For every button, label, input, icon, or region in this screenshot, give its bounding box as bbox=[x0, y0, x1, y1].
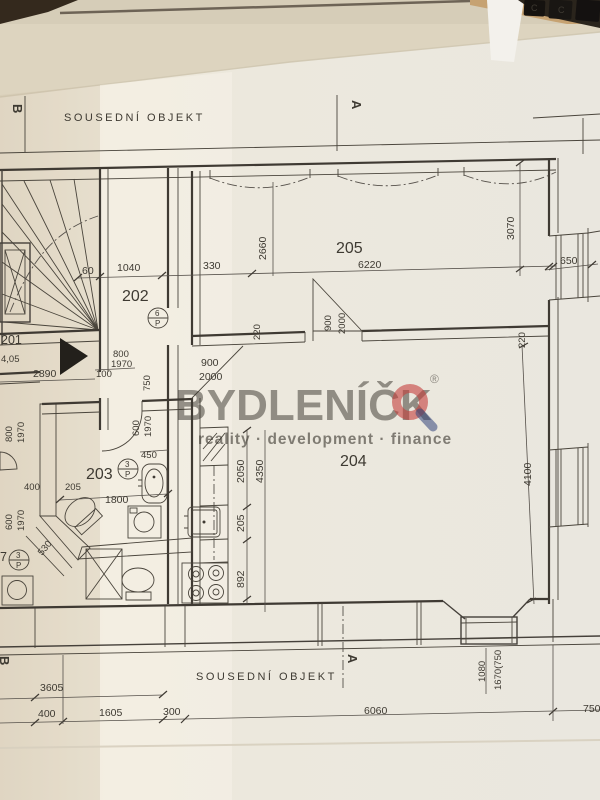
dim-4350: 4350 bbox=[254, 459, 266, 483]
dim-3605: 3605 bbox=[40, 682, 64, 694]
door-tag-letter: P bbox=[16, 561, 21, 570]
dim-220-b: 220 bbox=[517, 332, 528, 348]
dim-600-203door: 600 bbox=[131, 420, 142, 436]
dim-60: 60 bbox=[82, 265, 94, 277]
dim-220-a: 220 bbox=[252, 324, 263, 340]
dim-750-bottom: 750 bbox=[583, 703, 600, 715]
room-label-202: 202 bbox=[122, 288, 149, 305]
section-mark-b-bottom: B bbox=[0, 656, 12, 665]
dim-1970-left: 1970 bbox=[16, 422, 27, 443]
dim-450: 450 bbox=[141, 450, 157, 461]
floor-plan-drawing: C C SOUSEDNÍ OBJEKT B A bbox=[0, 0, 600, 800]
watermark-registered-mark: ® bbox=[430, 372, 439, 386]
room-label-207: 7 bbox=[0, 550, 7, 564]
dim-2660: 2660 bbox=[257, 236, 269, 260]
door-tag-202: 6 P bbox=[148, 308, 168, 328]
floor-plan-photo: C C SOUSEDNÍ OBJEKT B A bbox=[0, 0, 600, 800]
dim-3070: 3070 bbox=[505, 216, 517, 240]
section-mark-b-top: B bbox=[10, 104, 25, 113]
dim-1800: 1800 bbox=[105, 494, 129, 506]
dim-1970-left2: 1970 bbox=[16, 510, 27, 531]
dim-4100: 4100 bbox=[522, 462, 534, 486]
watermark-tagline: reality · development · finance bbox=[198, 431, 452, 448]
section-mark-a-top: A bbox=[349, 100, 364, 110]
dim-100: 100 bbox=[96, 369, 112, 380]
dim-1670-750: 1670(750 bbox=[493, 650, 504, 690]
door-tag-letter: P bbox=[125, 470, 130, 479]
keyboard-key-letter: C bbox=[558, 5, 565, 15]
dim-6060: 6060 bbox=[364, 705, 388, 717]
dim-1605: 1605 bbox=[99, 707, 123, 719]
room-label-203: 203 bbox=[86, 466, 113, 483]
dim-600-left2: 600 bbox=[4, 514, 15, 530]
room-area-201: 4,05 bbox=[1, 354, 20, 365]
section-mark-a-bottom: A bbox=[345, 654, 360, 664]
dim-650: 650 bbox=[560, 255, 578, 267]
door-tag-203: 3 P bbox=[118, 459, 138, 479]
top-boundary-label: SOUSEDNÍ OBJEKT bbox=[64, 111, 205, 124]
dim-400-left: 400 bbox=[24, 482, 40, 493]
door-tag-letter: P bbox=[155, 319, 160, 328]
dim-6220: 6220 bbox=[358, 259, 382, 271]
dim-900-202door: 900 bbox=[201, 357, 219, 369]
dim-892: 892 bbox=[235, 570, 247, 588]
dim-300: 300 bbox=[163, 706, 181, 718]
dim-2890: 2890 bbox=[33, 368, 57, 380]
door-tag-number: 3 bbox=[16, 551, 21, 560]
dim-205-kitchen: 205 bbox=[235, 514, 247, 532]
watermark: BYDLENÍČK ® reality · development · fina… bbox=[175, 372, 452, 448]
dim-205-203: 205 bbox=[65, 482, 81, 493]
door-tag-number: 6 bbox=[155, 309, 160, 318]
dim-750-left: 750 bbox=[142, 375, 153, 391]
bottom-boundary-label: SOUSEDNÍ OBJEKT bbox=[196, 670, 337, 683]
dim-2050: 2050 bbox=[235, 459, 247, 483]
dim-900-205door: 900 bbox=[323, 315, 334, 331]
door-tag-207: 3 P bbox=[9, 550, 29, 570]
dim-800-left: 800 bbox=[4, 426, 15, 442]
room-label-205: 205 bbox=[336, 240, 363, 257]
dim-1080: 1080 bbox=[477, 661, 488, 682]
room-label-201: 201 bbox=[1, 333, 22, 347]
dim-330: 330 bbox=[203, 260, 221, 272]
dim-1970-202: 1970 bbox=[111, 359, 132, 370]
door-tag-number: 3 bbox=[125, 460, 130, 469]
dim-1970-203door: 1970 bbox=[143, 416, 154, 437]
dim-1040: 1040 bbox=[117, 262, 141, 274]
room-label-204: 204 bbox=[340, 453, 367, 470]
dim-400-bottom: 400 bbox=[38, 708, 56, 720]
keyboard-key-letter: C bbox=[531, 3, 538, 13]
dim-2000-205door: 2000 bbox=[337, 313, 348, 334]
